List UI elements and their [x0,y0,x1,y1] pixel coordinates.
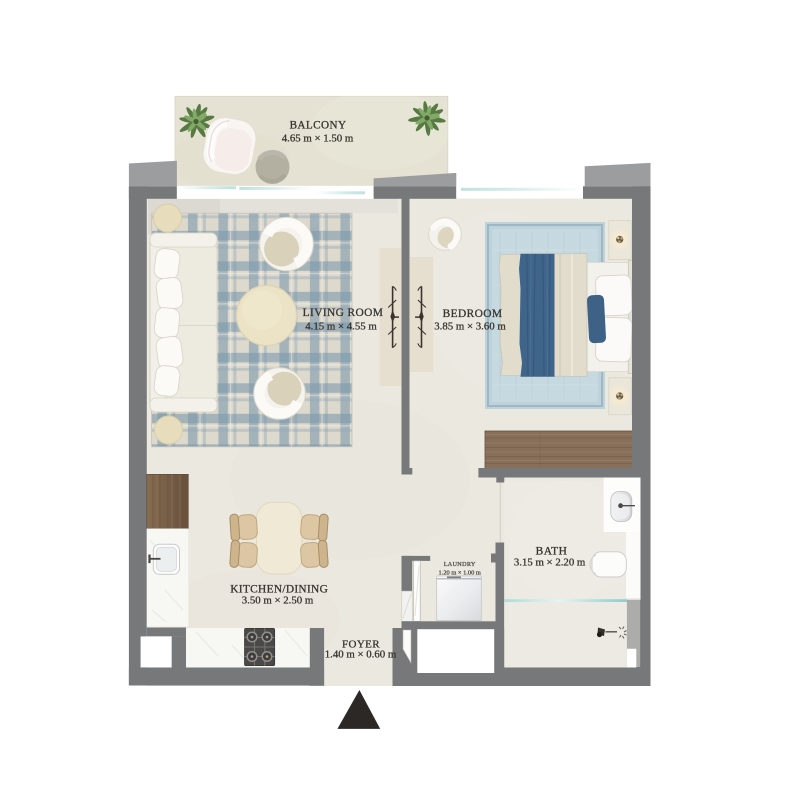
svg-text:3.15 m × 2.20 m: 3.15 m × 2.20 m [514,557,586,569]
svg-text:LAUNDRY: LAUNDRY [444,561,476,568]
svg-text:BALCONY: BALCONY [290,120,347,132]
svg-text:4.15 m × 4.55 m: 4.15 m × 4.55 m [305,321,377,333]
svg-text:1.40 m × 0.60 m: 1.40 m × 0.60 m [325,649,397,661]
svg-text:4.65 m × 1.50 m: 4.65 m × 1.50 m [282,133,354,145]
svg-text:LIVING ROOM: LIVING ROOM [303,307,384,319]
svg-text:3.85 m × 3.60 m: 3.85 m × 3.60 m [434,321,506,333]
svg-text:BEDROOM: BEDROOM [443,308,503,320]
svg-text:1.20 m × 1.00 m: 1.20 m × 1.00 m [439,570,481,577]
svg-text:3.50 m × 2.50 m: 3.50 m × 2.50 m [242,595,314,607]
